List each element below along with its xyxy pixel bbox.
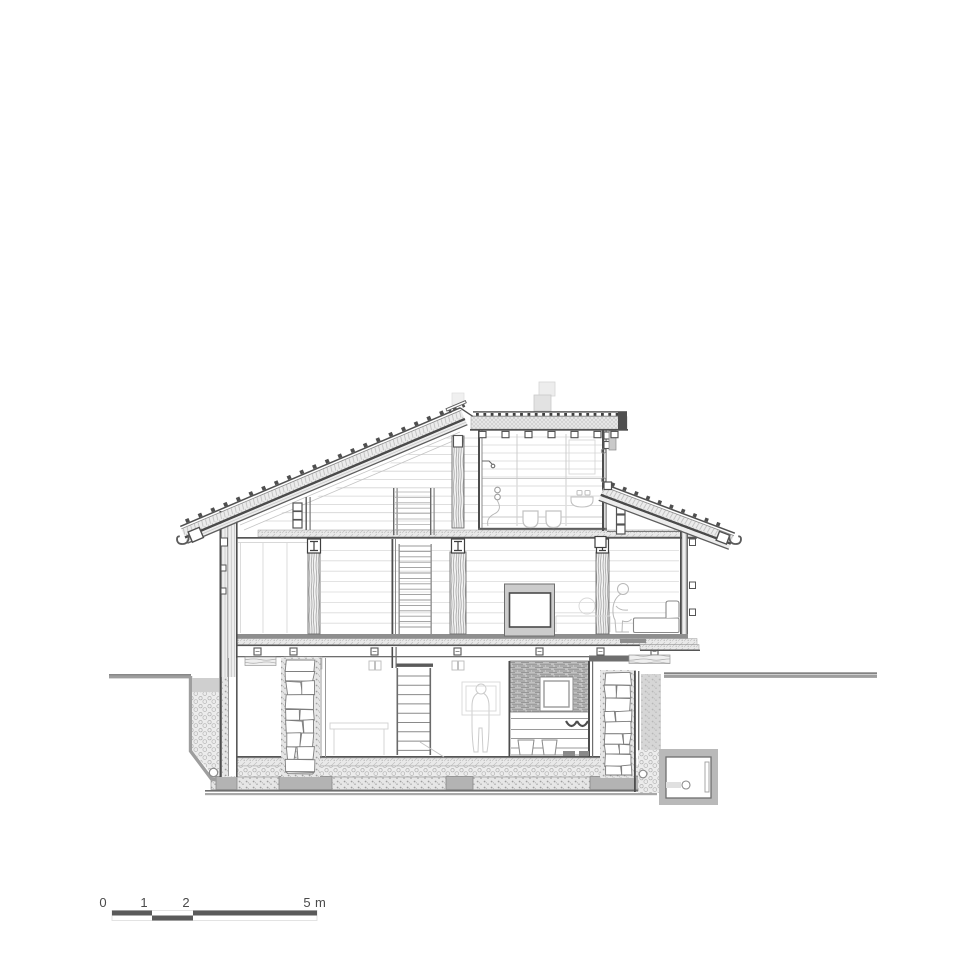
svg-text:1: 1 bbox=[140, 895, 147, 910]
svg-text:5: 5 bbox=[303, 895, 310, 910]
svg-text:2: 2 bbox=[182, 895, 189, 910]
svg-text:0: 0 bbox=[99, 895, 106, 910]
svg-text:m: m bbox=[315, 895, 326, 910]
